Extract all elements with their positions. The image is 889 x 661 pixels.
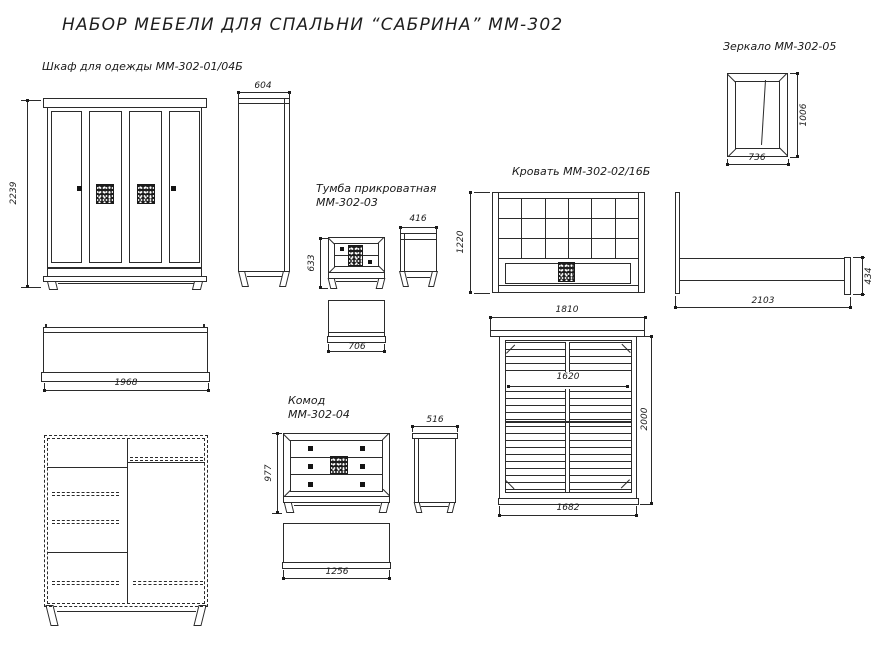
quilt-grid-line [568,198,569,258]
base-rail-line [421,506,448,507]
furniture-leg [379,502,390,513]
shelf-stitch-line [52,520,119,524]
dim-nightstand-depth: 416 [403,214,433,224]
edge-line [418,438,419,503]
dim-line-headboard-width [490,317,646,318]
extension-line [644,319,645,330]
edge-line [238,103,290,104]
furniture-leg [238,271,249,287]
dim-headboard-width: 1810 [552,305,582,315]
page-title: НАБОР МЕБЕЛИ ДЛЯ СПАЛЬНИ “САБРИНА” ММ-30… [62,15,563,35]
dim-berth-length: 2000 [640,404,650,434]
drawer-handle [360,446,365,451]
furniture-leg [376,278,386,289]
nightstand-label-line2: ММ-302-03 [316,196,378,209]
edge-line [284,98,285,272]
dim-berth-width: 1620 [553,372,583,382]
extension-line [457,428,458,432]
furniture-leg [399,271,409,287]
extension-line [21,100,41,101]
dim-line-wardrobe-width [44,390,209,391]
drawer-divider-line [290,474,383,475]
dim-mirror-width: 736 [742,153,772,163]
extension-line [474,192,490,193]
quilt-grid-line [545,198,546,258]
furniture-leg [414,502,423,513]
wardrobe-base-crown [43,276,207,282]
dim-line-frame-width [499,515,637,516]
base-rail-line [247,276,282,277]
mirror-label: Зеркало ММ-302-05 [723,40,836,53]
dim-line-chest-height [277,433,278,513]
extension-line [640,504,650,505]
quilt-grid-line [498,218,639,219]
drawer-handle [340,247,344,251]
dim-line-nightstand-width [328,351,385,352]
door-handle [171,186,176,191]
carving-ornament [137,184,155,204]
edge-line [328,332,385,333]
drawer-handle [308,446,313,451]
base-rail-line [407,277,430,278]
wardrobe-top-body [43,327,208,373]
quilt-grid-line [615,198,616,258]
quilt-grid-line [591,198,592,258]
base-rail-line [498,285,639,286]
dim-mirror-height: 1006 [799,100,809,130]
cross-rail-line [506,421,631,423]
chest-label-line1: Комод [288,394,325,407]
shelf-stitch-line [130,457,203,461]
furniture-drawing-sheet: НАБОР МЕБЕЛИ ДЛЯ СПАЛЬНИ “САБРИНА” ММ-30… [0,0,889,661]
headboard-side [675,192,680,294]
extension-line [474,293,490,294]
dim-line-mirror-width [727,164,789,165]
drawer-handle [368,260,372,264]
carving-ornament [96,184,114,204]
shelf-stitch-line [52,492,119,496]
bed-label: Кровать ММ-302-02/16Б [512,165,650,178]
nightstand-base-band [328,272,385,279]
shelf-line [47,467,127,468]
quilt-grid-line [498,258,639,259]
base-rail-line [58,283,194,284]
shelf-line [127,462,205,463]
dim-chest-depth: 516 [420,415,450,425]
furniture-leg [47,281,58,290]
edge-line [404,233,405,272]
drawer-handle [360,482,365,487]
base-rail-line [294,505,380,506]
dim-chest-height: 977 [264,458,274,488]
shelf-stitch-line [52,581,119,585]
carving-ornament [348,245,363,266]
wardrobe-side-body [238,98,290,272]
mirror-frame-inner [735,81,780,149]
extension-line [322,288,328,289]
headboard-post-line [498,192,499,293]
dim-headboard-height: 1220 [456,227,466,257]
quilt-grid-line [498,238,639,239]
dim-line-nightstand-height [320,238,321,288]
dim-wardrobe-width: 1968 [111,378,141,388]
furniture-leg [193,605,206,626]
side-rail-line [680,258,844,259]
chest-label-line2: ММ-302-04 [288,408,350,421]
dim-line-wardrobe-height [27,100,28,287]
chest-side-body [414,438,456,503]
shelf-stitch-line [133,581,203,585]
dim-line-bed-length [675,307,851,308]
dim-wardrobe-depth: 604 [248,81,278,91]
footboard-side [844,257,851,295]
bed-center-rail [565,342,570,492]
extension-line [640,336,650,337]
dim-line-chest-width [283,578,390,579]
furniture-leg [279,271,290,287]
dim-nightstand-height: 633 [307,248,317,278]
furniture-leg [447,502,456,513]
chest-top-body [283,523,390,563]
edge-line [400,239,437,240]
dim-line-headboard-height [470,192,471,293]
carving-ornament [558,262,575,282]
furniture-leg [428,271,438,287]
drawer-handle [308,482,313,487]
wardrobe-label: Шкаф для одежды ММ-302-01/04Б [42,60,243,73]
dim-line-berth-width [508,386,628,387]
drawer-handle [308,464,313,469]
extension-line [412,428,413,432]
dim-line-nightstand-depth [400,227,437,228]
headboard-post-line [638,192,639,293]
carving-ornament [330,456,348,474]
furniture-leg [284,502,295,513]
furniture-leg [45,605,58,626]
dim-line-wardrobe-depth [238,92,290,93]
nightstand-label-line1: Тумба прикроватная [316,182,436,195]
dim-bed-length: 2103 [748,296,778,306]
quilt-grid-line [521,198,522,258]
dim-chest-width: 1256 [322,567,352,577]
dim-line-mirror-height [797,73,798,157]
dim-frame-width: 1682 [553,503,583,513]
chest-base-band [283,496,390,503]
dim-footboard-height: 434 [864,261,874,291]
extension-line [21,287,41,288]
furniture-leg [328,278,338,289]
dim-wardrobe-height: 2239 [9,178,19,208]
dim-line-footboard-height [862,257,863,295]
side-rail-line [680,280,844,281]
base-rail-line [336,281,377,282]
door-handle [77,186,82,191]
dim-line-berth-length [651,336,652,504]
drawer-handle [360,464,365,469]
base-rail-line [57,611,196,612]
dim-line-chest-depth [412,426,458,427]
shelf-line [47,552,127,553]
edge-line [43,332,208,333]
extension-line [322,238,328,239]
extension-line [490,319,491,330]
